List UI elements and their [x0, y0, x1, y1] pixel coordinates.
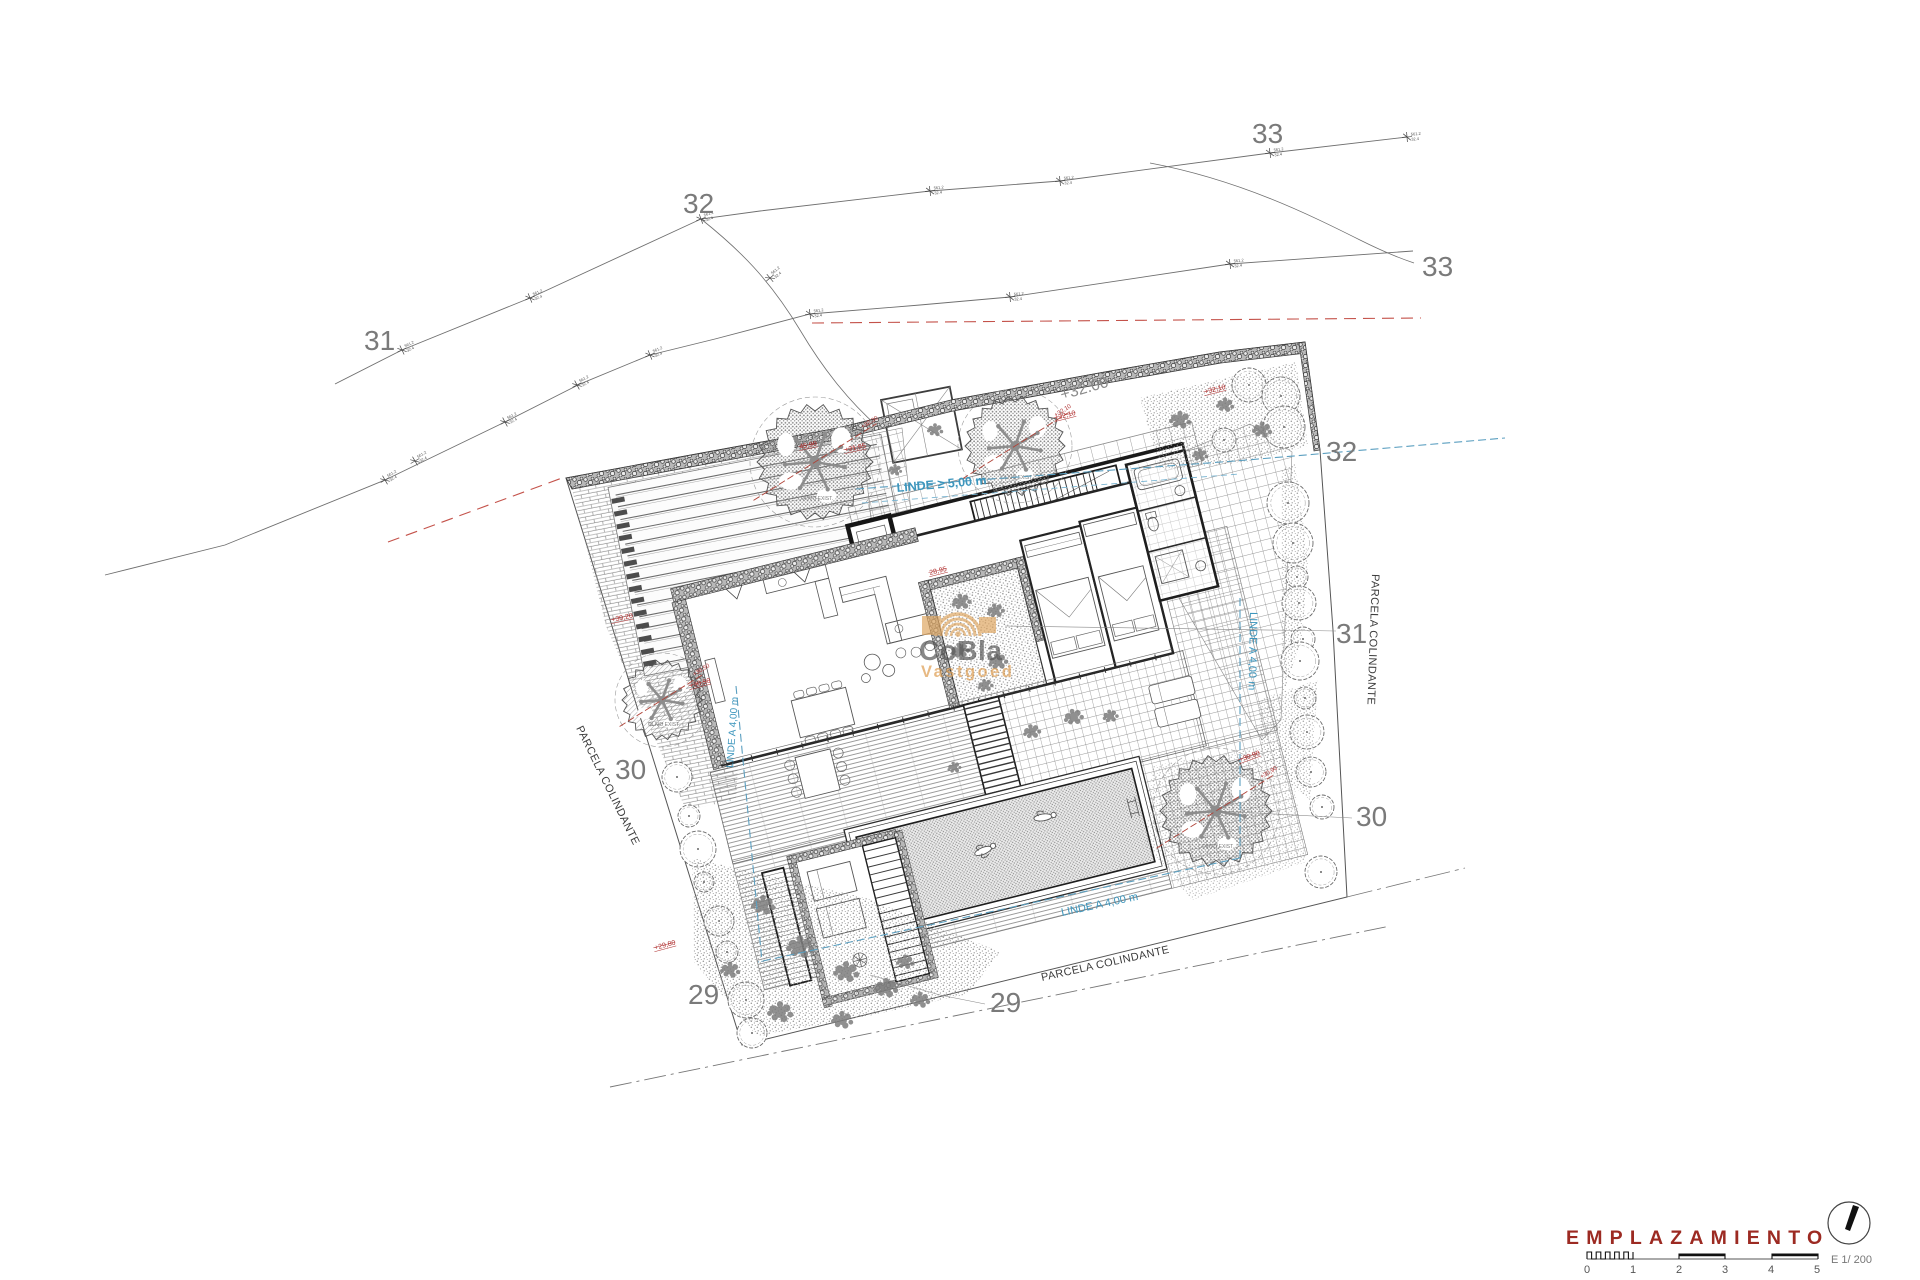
svg-text:32.4: 32.4 — [1411, 136, 1420, 142]
svg-text:33: 33 — [1422, 251, 1453, 282]
svg-text:30: 30 — [615, 754, 646, 785]
svg-text:32.4: 32.4 — [1064, 180, 1073, 186]
svg-text:32.4: 32.4 — [934, 189, 943, 195]
svg-text:1: 1 — [1630, 1264, 1636, 1276]
svg-text:LINDE A 4,00 m: LINDE A 4,00 m — [1246, 612, 1259, 690]
svg-text:32.4: 32.4 — [1234, 262, 1243, 268]
svg-text:33: 33 — [1252, 118, 1283, 149]
svg-text:29: 29 — [688, 979, 719, 1010]
svg-text:4: 4 — [1768, 1264, 1774, 1276]
svg-text:E 1/ 200: E 1/ 200 — [1831, 1254, 1872, 1266]
svg-text:3: 3 — [1722, 1264, 1728, 1276]
svg-text:32: 32 — [683, 188, 714, 219]
svg-text:32.4: 32.4 — [1014, 296, 1023, 302]
svg-text:30: 30 — [1356, 801, 1387, 832]
svg-text:OLIVO EXIST.: OLIVO EXIST. — [801, 496, 833, 502]
svg-text:CoBla: CoBla — [919, 635, 1002, 666]
svg-text:2: 2 — [1676, 1264, 1682, 1276]
svg-text:OLIVO EXIST.: OLIVO EXIST. — [1202, 844, 1234, 850]
svg-text:OLIVO EXIST.: OLIVO EXIST. — [648, 722, 680, 728]
svg-text:5: 5 — [1814, 1264, 1820, 1276]
svg-text:31: 31 — [1336, 618, 1367, 649]
svg-text:29: 29 — [990, 987, 1021, 1018]
svg-text:32: 32 — [1326, 436, 1357, 467]
svg-text:31: 31 — [364, 325, 395, 356]
svg-text:0: 0 — [1584, 1264, 1590, 1276]
svg-text:Vastgoed: Vastgoed — [921, 663, 1014, 681]
svg-text:EMPLAZAMIENTO: EMPLAZAMIENTO — [1566, 1227, 1829, 1249]
